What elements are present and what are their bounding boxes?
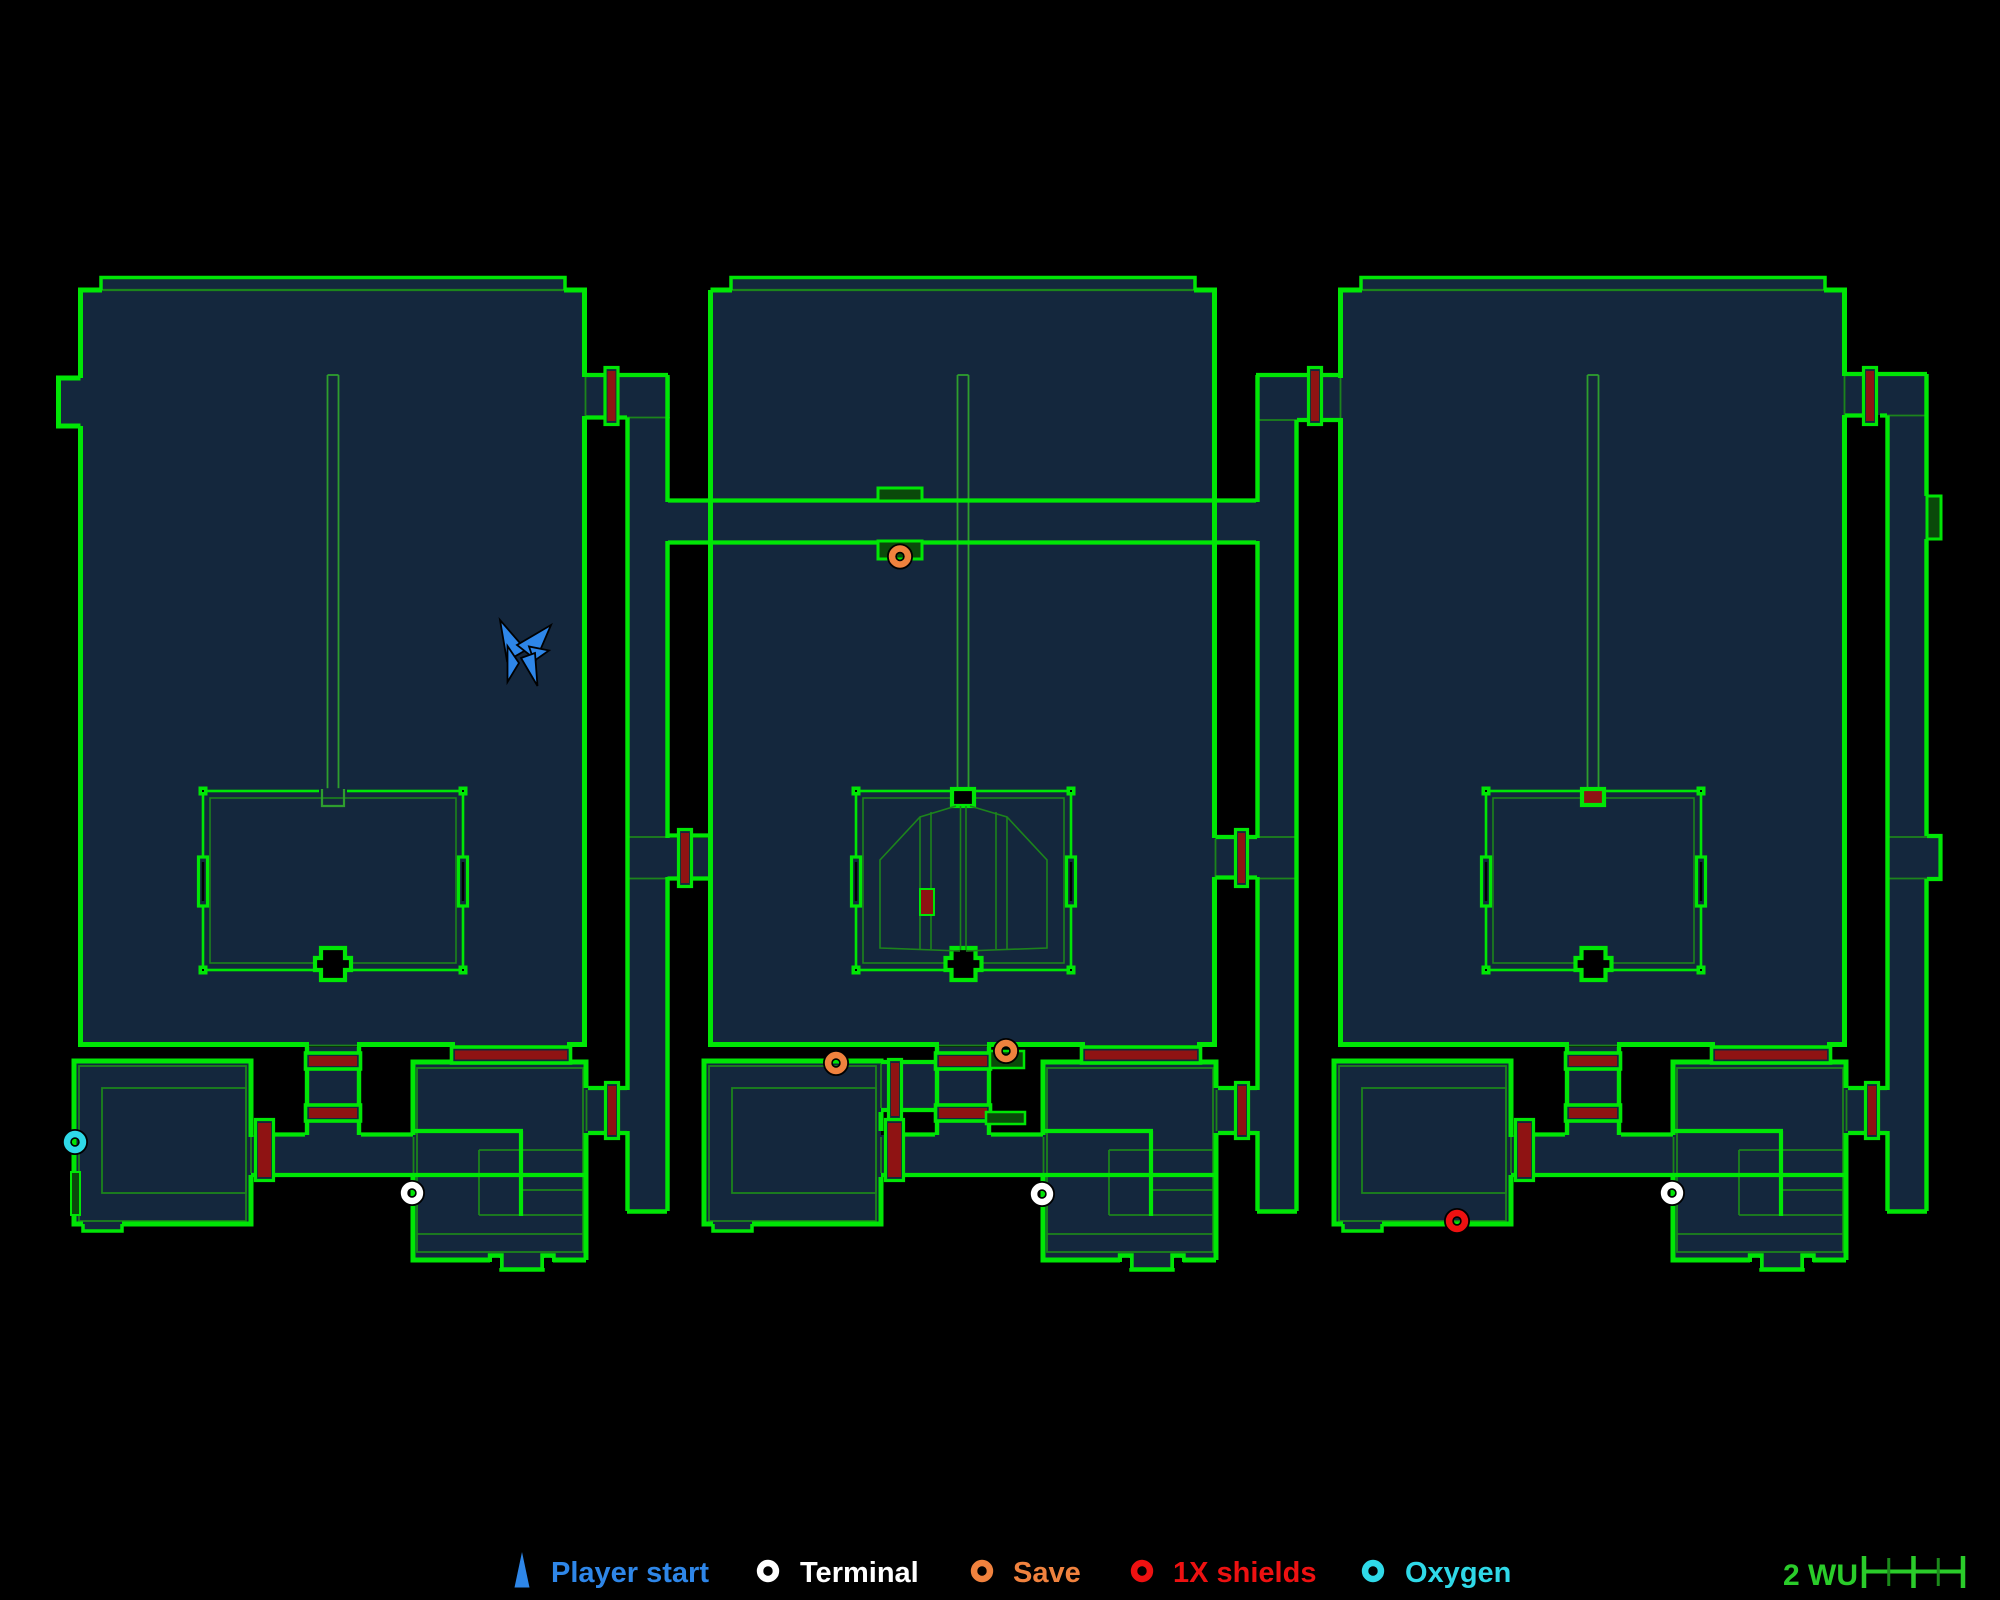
svg-text:Oxygen: Oxygen [1405, 1557, 1511, 1589]
svg-text:2 WU: 2 WU [1783, 1559, 1858, 1592]
svg-text:Save: Save [1013, 1557, 1081, 1589]
svg-text:Terminal: Terminal [800, 1557, 919, 1589]
svg-text:1X shields: 1X shields [1173, 1557, 1316, 1589]
svg-text:Player start: Player start [551, 1557, 709, 1589]
